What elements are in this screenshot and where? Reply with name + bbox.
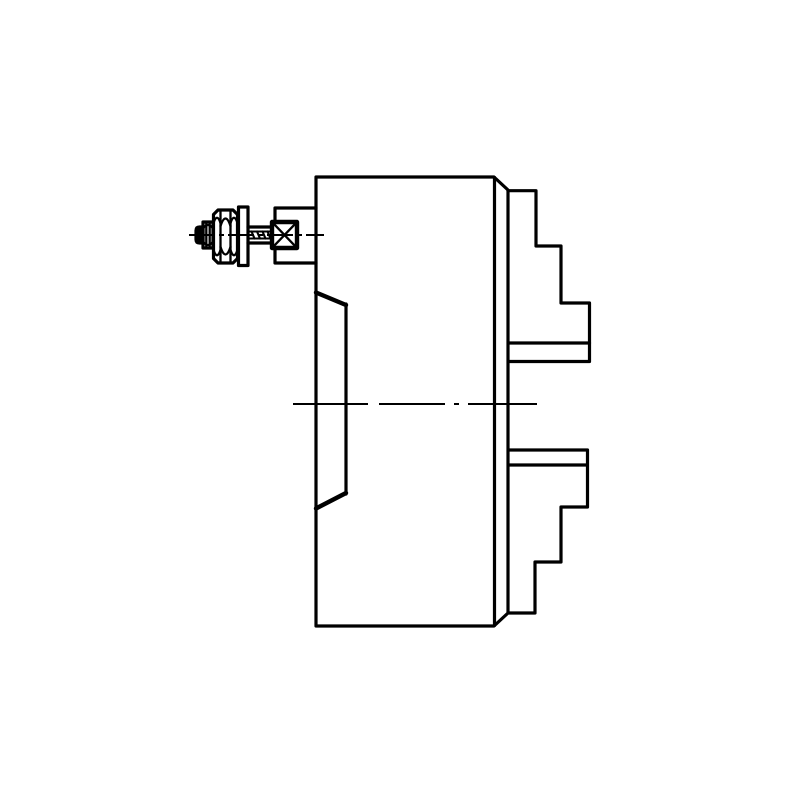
drawing-line-work: [189, 177, 590, 626]
jaw-guide-chamfer-bottom: [316, 493, 346, 509]
screw-hex-arcs: [214, 218, 238, 256]
drawing-page: [0, 0, 800, 800]
washer: [239, 207, 249, 266]
bottom-jaw-outline: [509, 450, 588, 613]
top-jaw-outline: [508, 191, 590, 362]
jaw-guide-chamfer-top: [316, 293, 346, 306]
lathe-chuck-technical-drawing: [0, 0, 800, 800]
